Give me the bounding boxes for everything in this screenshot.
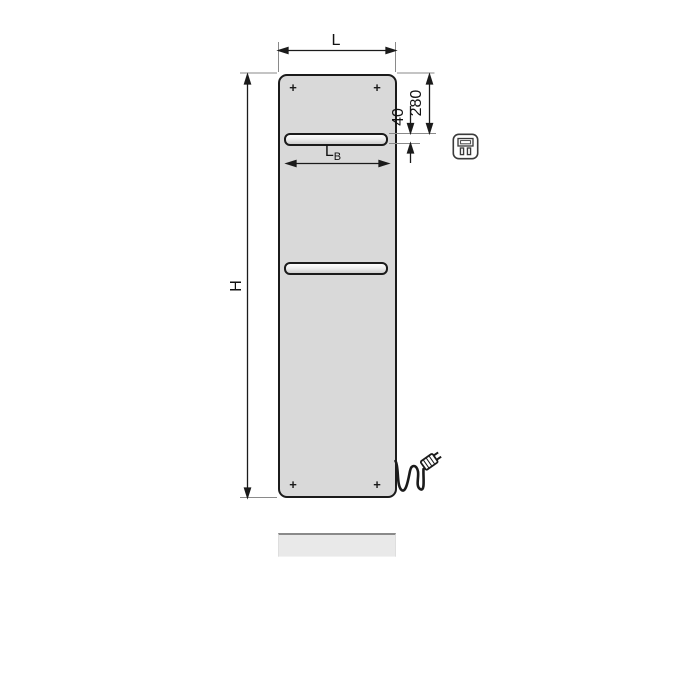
dim-label-height-H: H [228,276,246,296]
dim-label-280: 280 [408,83,426,123]
power-cable [396,450,443,490]
dim-label-LB-sub: B [334,151,341,163]
dim-label-width-L: L [326,32,346,50]
towel-slot-middle [284,262,388,275]
radiator-dimension-drawing: + + + + [0,0,700,700]
dim-label-bar-width-LB: LB [313,143,353,163]
electric-plug-badge-icon [452,133,479,160]
mounting-mark-bottom-right: + [371,479,383,491]
floor-shadow-strip [278,533,396,557]
mounting-mark-bottom-left: + [287,479,299,491]
mounting-mark-top-right: + [371,82,383,94]
dim-label-LB-main: L [325,143,334,160]
mounting-mark-top-left: + [287,82,299,94]
plug-icon [420,450,442,470]
dim-label-40: 40 [390,102,408,132]
